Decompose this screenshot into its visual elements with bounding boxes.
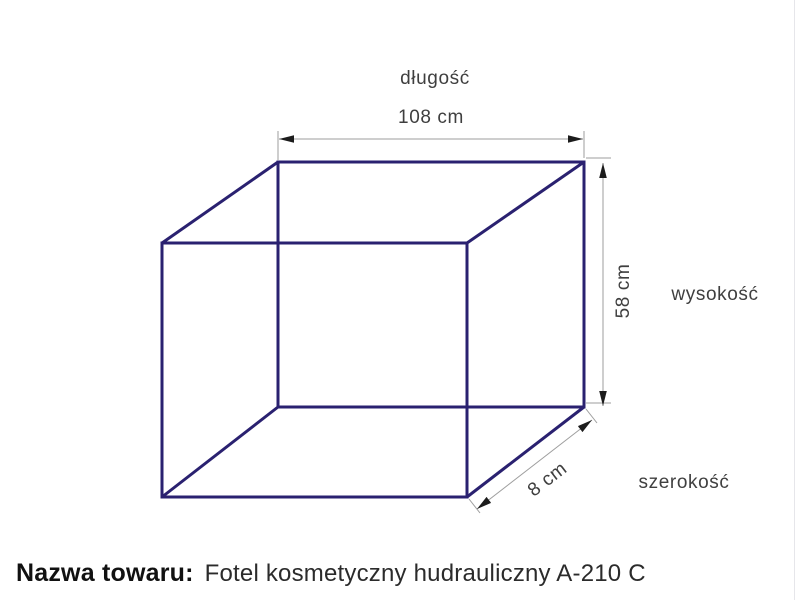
box-back-face: [278, 162, 584, 407]
box-depth-edge-top-right: [467, 162, 584, 243]
box-depth-edge-bottom-left: [162, 407, 278, 497]
box-front-face: [162, 243, 467, 497]
box-wireframe: [162, 162, 584, 497]
height-dimension: [586, 158, 611, 406]
length-label: długość: [400, 68, 470, 89]
width-extension-front: [469, 499, 480, 513]
length-value: 108 cm: [398, 107, 464, 128]
length-dimension: [278, 131, 584, 160]
height-value: 58 cm: [613, 264, 634, 319]
height-label: wysokość: [670, 284, 758, 305]
width-value: 8 cm: [524, 458, 571, 501]
right-edge-border: [794, 0, 795, 600]
width-label: szerokość: [639, 472, 730, 493]
product-name-value: Fotel kosmetyczny hudrauliczny A-210 C: [205, 560, 646, 588]
box-depth-edge-top-left: [162, 162, 278, 243]
dimension-labels: długość 108 cm 58 cm wysokość 8 cm szero…: [398, 68, 759, 501]
dimension-lines: [278, 131, 611, 513]
product-name-label: Nazwa towaru:: [16, 559, 194, 588]
product-name-row: Nazwa towaru: Fotel kosmetyczny hudrauli…: [16, 559, 646, 588]
dimension-diagram: długość 108 cm 58 cm wysokość 8 cm szero…: [0, 0, 800, 600]
